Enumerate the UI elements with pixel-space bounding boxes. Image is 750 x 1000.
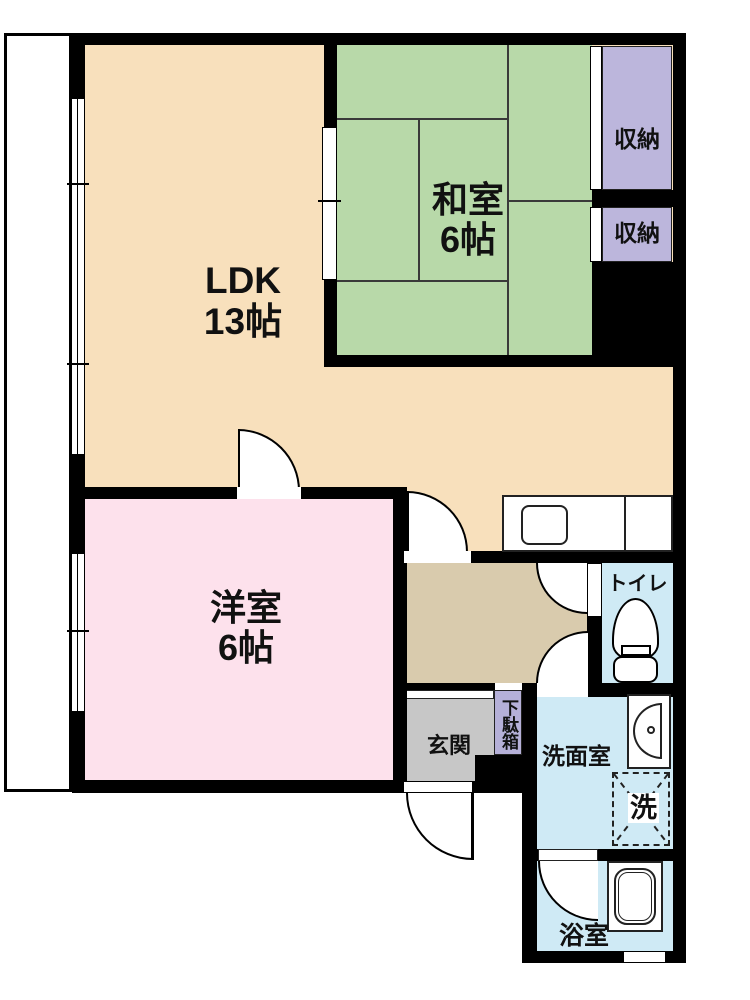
sliding-door-washitsu	[322, 127, 337, 280]
wall-top	[72, 33, 686, 45]
sliding-door-storage-bottom	[590, 207, 602, 262]
sliding-door-storage-top	[590, 46, 602, 190]
toilet-seat-icon	[621, 645, 651, 656]
label-toilet: トイレ	[600, 573, 675, 595]
window-tick	[67, 630, 89, 632]
window-tick	[67, 363, 89, 365]
doorway-genkan	[403, 781, 473, 793]
doorway-yokushitsu	[538, 849, 598, 861]
wall-bath-left	[522, 683, 537, 963]
wall-youshitsu-bottom	[72, 780, 407, 793]
tatami-line	[336, 280, 507, 282]
wall-toilet-left	[587, 615, 602, 683]
kitchen-sink	[521, 505, 568, 545]
window-mullion	[77, 99, 78, 454]
window-mullion	[77, 554, 78, 711]
label-youshitsu-name: 洋室	[166, 588, 326, 628]
label-youshitsu-size: 6帖	[166, 628, 326, 668]
doorway-hall-senmenshitsu	[538, 683, 588, 697]
label-ldk-name: LDK	[163, 260, 323, 301]
label-yokushitsu: 浴室	[552, 922, 616, 950]
sliding-door-tick	[318, 200, 341, 202]
label-genkan: 玄関	[404, 734, 494, 759]
label-washitsu-size: 6帖	[388, 220, 548, 260]
tatami-line	[336, 118, 507, 120]
label-senmenshitsu: 洗面室	[539, 744, 614, 770]
washing-machine-icon: 洗	[612, 772, 670, 846]
floor-plan: 洗 LDK 13帖 和室 6帖 洋室 6帖 収納 収納 トイレ 玄関 下駄箱 洗…	[0, 0, 750, 1000]
wall-under-getabako	[475, 755, 537, 793]
wall-hall-genkan	[403, 683, 495, 690]
label-ldk: LDK 13帖	[163, 260, 323, 343]
label-washitsu: 和室 6帖	[388, 180, 548, 261]
toilet-tank-icon	[613, 656, 658, 683]
wall-right	[673, 33, 686, 963]
window-tick	[67, 183, 89, 185]
label-ldk-size: 13帖	[163, 301, 323, 342]
label-storage-top: 収納	[602, 127, 672, 153]
doorway-ldk-hall	[404, 551, 471, 563]
window-ldk	[71, 98, 85, 455]
counter-divider	[624, 497, 626, 550]
label-storage-bottom: 収納	[602, 221, 672, 247]
washing-machine-label: 洗	[628, 793, 659, 823]
label-youshitsu: 洋室 6帖	[166, 588, 326, 669]
label-getabako: 下駄箱	[495, 692, 521, 756]
window-bathroom	[623, 951, 666, 963]
wall-storage-mid	[592, 190, 673, 207]
vanity-drain-icon	[647, 726, 655, 734]
vanity-counter	[627, 694, 671, 769]
kitchen-counter	[502, 495, 673, 552]
bathtub-inner	[618, 872, 652, 921]
label-washitsu-name: 和室	[388, 180, 548, 220]
doorway-ldk-youshitsu	[237, 487, 301, 499]
wall-storage-bottom-fill	[592, 262, 673, 362]
door-genkan	[406, 793, 473, 860]
window-youshitsu	[71, 553, 85, 712]
room-storage-top	[602, 46, 672, 190]
genkan-step	[403, 690, 494, 699]
balcony	[4, 33, 72, 792]
door-leaf-genkan	[471, 793, 474, 860]
